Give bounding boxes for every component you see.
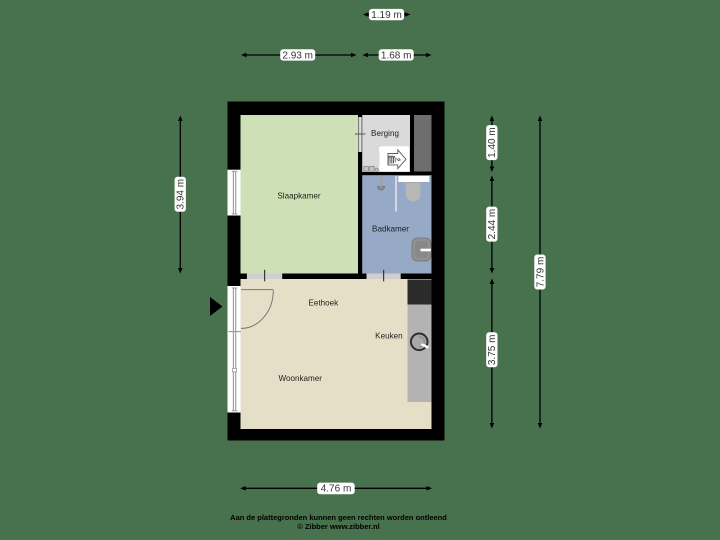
svg-text:1.68 m: 1.68 m: [381, 50, 412, 61]
svg-text:Badkamer: Badkamer: [372, 225, 409, 234]
svg-text:2.93 m: 2.93 m: [282, 50, 313, 61]
svg-text:Berging: Berging: [371, 129, 399, 138]
svg-text:2.44 m: 2.44 m: [487, 209, 498, 240]
svg-text:Keuken: Keuken: [375, 332, 402, 341]
svg-text:4.76 m: 4.76 m: [321, 484, 352, 495]
svg-text:3.75 m: 3.75 m: [487, 335, 498, 366]
svg-text:7.79 m: 7.79 m: [535, 257, 546, 288]
svg-text:Woonkamer: Woonkamer: [278, 374, 322, 383]
svg-text:Aan de plattegronden kunnen ge: Aan de plattegronden kunnen geen rechten…: [230, 513, 447, 522]
svg-text:© Zibber www.zibber.nl: © Zibber www.zibber.nl: [297, 522, 379, 531]
svg-text:1.40 m: 1.40 m: [487, 127, 498, 158]
svg-text:Slaapkamer: Slaapkamer: [277, 192, 320, 201]
svg-text:3.94 m: 3.94 m: [176, 179, 187, 210]
svg-text:1.19 m: 1.19 m: [371, 10, 402, 21]
svg-text:Eethoek: Eethoek: [308, 299, 339, 308]
